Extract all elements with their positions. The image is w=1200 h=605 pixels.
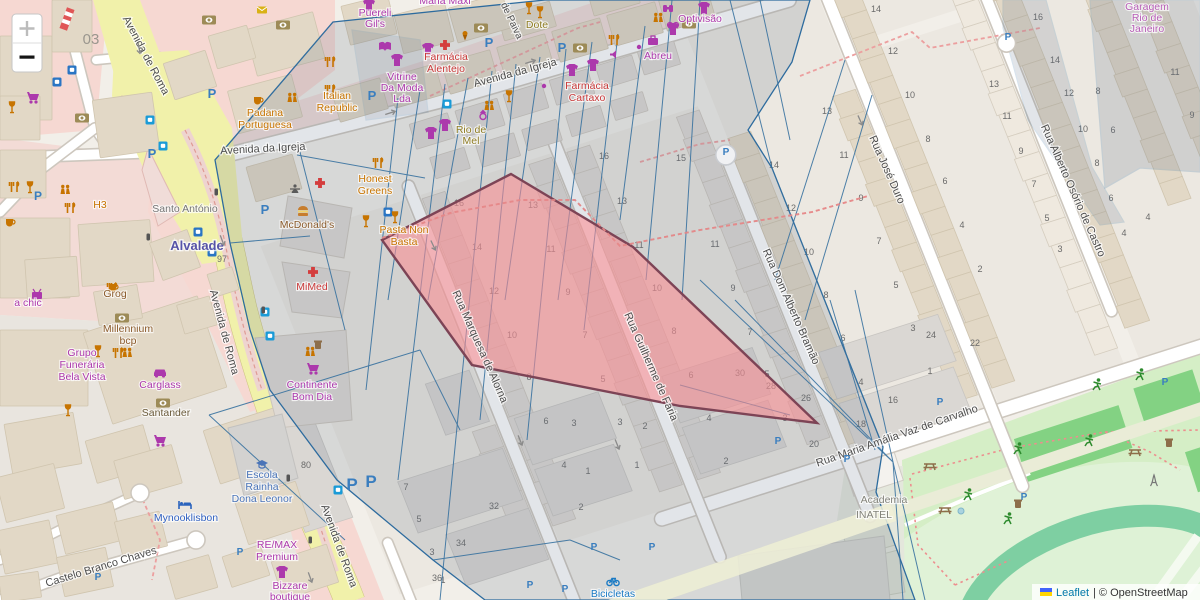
svg-text:MiMed: MiMed — [296, 281, 328, 293]
svg-text:Dona Leonor: Dona Leonor — [232, 493, 293, 505]
svg-text:22: 22 — [970, 338, 980, 348]
svg-text:Basta: Basta — [391, 236, 418, 248]
svg-text:7: 7 — [876, 236, 881, 246]
svg-text:16: 16 — [888, 395, 898, 405]
svg-text:11: 11 — [839, 150, 848, 160]
svg-text:P: P — [237, 547, 244, 558]
svg-text:Republic: Republic — [317, 102, 358, 114]
svg-text:Padana: Padana — [247, 107, 283, 119]
svg-text:Bicicletas: Bicicletas — [591, 588, 635, 600]
svg-text:Leaflet: Leaflet — [1056, 587, 1089, 599]
svg-text:Lda: Lda — [393, 93, 411, 105]
svg-text:P: P — [844, 454, 851, 465]
svg-text:Funerária: Funerária — [60, 359, 105, 371]
svg-text:RE/MAX: RE/MAX — [257, 539, 297, 551]
svg-text:Alvalade: Alvalade — [170, 238, 223, 253]
svg-text:Santander: Santander — [142, 407, 191, 419]
svg-text:Carglass: Carglass — [139, 379, 180, 391]
svg-text:Alentejo: Alentejo — [427, 63, 465, 75]
svg-text:Abreu: Abreu — [644, 50, 672, 62]
svg-text:P: P — [775, 436, 782, 447]
svg-text:Rainha: Rainha — [245, 481, 278, 493]
svg-text:P: P — [485, 35, 494, 50]
svg-text:Optivisão: Optivisão — [678, 13, 722, 25]
svg-text:8: 8 — [925, 134, 930, 144]
svg-text:P: P — [937, 397, 944, 408]
svg-text:P: P — [208, 86, 217, 101]
svg-text:5: 5 — [893, 280, 898, 290]
svg-text:8: 8 — [1094, 158, 1099, 168]
svg-text:5: 5 — [1044, 213, 1049, 223]
svg-text:Farmácia: Farmácia — [565, 80, 609, 92]
svg-text:Cartaxo: Cartaxo — [569, 92, 606, 104]
svg-text:Portuguesa: Portuguesa — [238, 119, 292, 131]
svg-text:P: P — [261, 202, 270, 217]
svg-text:P: P — [527, 580, 534, 591]
svg-text:11: 11 — [1002, 111, 1011, 121]
svg-text:Pasta Non: Pasta Non — [379, 224, 428, 236]
svg-text:McDonald's: McDonald's — [280, 219, 335, 231]
svg-text:P: P — [148, 146, 157, 161]
svg-text:6: 6 — [942, 176, 947, 186]
svg-text:10: 10 — [905, 90, 915, 100]
svg-text:P: P — [346, 475, 357, 494]
svg-text:24: 24 — [926, 330, 936, 340]
svg-text:Farmácia: Farmácia — [424, 51, 468, 63]
svg-text:a chic: a chic — [14, 297, 41, 309]
svg-text:Continente: Continente — [287, 379, 338, 391]
svg-text:03: 03 — [83, 31, 100, 48]
svg-text:P: P — [558, 40, 567, 55]
svg-text:P: P — [723, 147, 730, 158]
svg-text:4: 4 — [1121, 228, 1126, 238]
svg-text:14: 14 — [871, 4, 881, 14]
svg-text:Janeiro: Janeiro — [1130, 23, 1165, 35]
svg-text:INATEL: INATEL — [856, 509, 892, 521]
svg-text:Dote: Dote — [526, 19, 548, 31]
svg-text:Escola: Escola — [246, 469, 278, 481]
svg-text:4: 4 — [1145, 212, 1150, 222]
svg-text:13: 13 — [822, 106, 832, 116]
svg-text:| © OpenStreetMap: | © OpenStreetMap — [1093, 587, 1188, 599]
svg-text:P: P — [649, 542, 656, 553]
svg-text:Greens: Greens — [358, 185, 392, 197]
svg-text:3: 3 — [910, 323, 915, 333]
svg-text:boutique: boutique — [270, 591, 310, 600]
svg-text:Mynooklisbon: Mynooklisbon — [154, 512, 218, 524]
svg-text:P: P — [562, 584, 569, 595]
svg-text:P: P — [34, 189, 42, 203]
svg-text:2: 2 — [977, 264, 982, 274]
svg-text:12: 12 — [888, 46, 898, 56]
svg-text:P: P — [591, 542, 598, 553]
svg-text:Honest: Honest — [358, 173, 391, 185]
svg-text:1: 1 — [927, 366, 932, 376]
svg-text:7: 7 — [1031, 179, 1036, 189]
svg-text:Italian: Italian — [323, 90, 351, 102]
svg-text:Bom Dia: Bom Dia — [292, 391, 332, 403]
svg-text:Grog: Grog — [103, 288, 127, 300]
svg-text:Premium: Premium — [256, 551, 298, 563]
svg-text:Gil's: Gil's — [365, 18, 385, 30]
svg-text:13: 13 — [989, 79, 999, 89]
svg-text:P: P — [368, 88, 377, 103]
svg-text:Millennium: Millennium — [103, 323, 153, 335]
svg-text:80: 80 — [301, 460, 311, 470]
svg-text:H3: H3 — [93, 199, 107, 211]
svg-text:P: P — [365, 472, 376, 491]
svg-text:4: 4 — [959, 220, 964, 230]
svg-text:97: 97 — [217, 254, 227, 264]
svg-text:bcp: bcp — [120, 335, 137, 347]
svg-text:Santo António: Santo António — [152, 203, 218, 215]
svg-text:3: 3 — [1057, 244, 1062, 254]
svg-text:4: 4 — [858, 377, 863, 387]
svg-text:P: P — [1005, 32, 1012, 43]
svg-text:Grupo: Grupo — [67, 347, 96, 359]
svg-text:9: 9 — [1018, 146, 1023, 156]
svg-text:36: 36 — [432, 573, 442, 583]
svg-text:Bela Vista: Bela Vista — [58, 371, 105, 383]
svg-text:P: P — [95, 572, 102, 583]
svg-text:Maria Maxi: Maria Maxi — [419, 0, 470, 7]
svg-text:Mel: Mel — [463, 135, 480, 147]
svg-text:Academia: Academia — [861, 494, 908, 506]
svg-text:P: P — [1162, 377, 1169, 388]
